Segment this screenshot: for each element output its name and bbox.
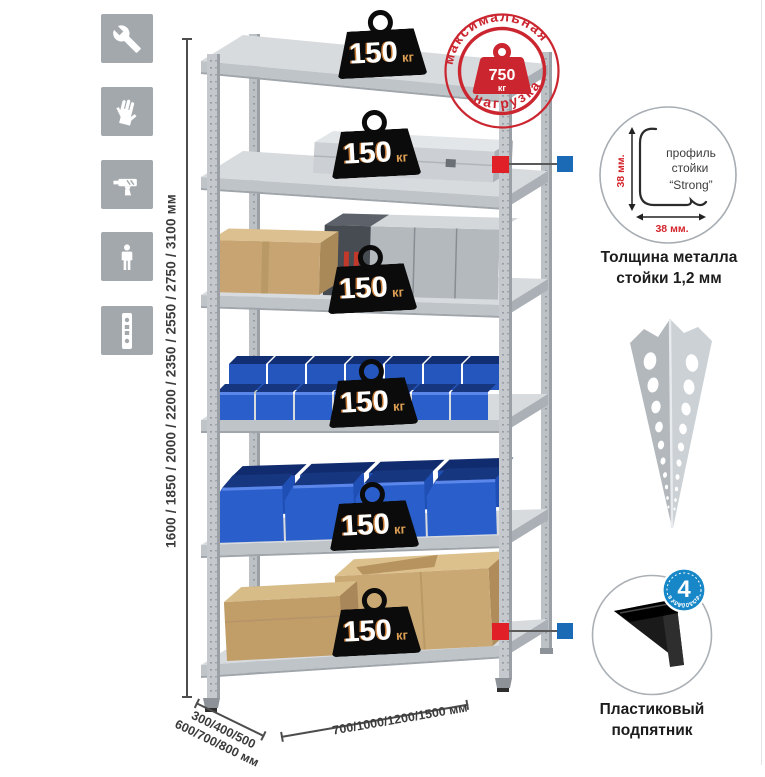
height-dimension-label: 1600 / 1850 / 2000 / 2200 / 2350 / 2550 …: [164, 194, 179, 548]
corner-post-illustration: [600, 303, 740, 538]
connector-square-blue-top: [557, 156, 573, 172]
connector-line-bottom: [509, 630, 557, 632]
dim-horizontal-label: 38 мм.: [655, 223, 688, 235]
shelf-load-badge-1: 150кг: [334, 8, 427, 80]
svg-text:“Strong”: “Strong”: [669, 178, 712, 192]
stamp-load-unit: кг: [498, 83, 507, 93]
foot-count-badge: 4 в комплекте: [660, 566, 708, 614]
load-unit: кг: [402, 50, 415, 64]
load-value: 150: [343, 616, 393, 647]
stamp-load-value: 750: [489, 67, 516, 84]
load-value: 150: [340, 387, 390, 418]
connector-square-red-top: [492, 156, 509, 173]
shelf-load-badge-6: 150кг: [328, 586, 421, 658]
profile-caption: Толщина металла стойки 1,2 мм: [580, 248, 758, 290]
person-icon: [114, 242, 140, 272]
profile-caption-line2: стойки 1,2 мм: [580, 269, 758, 290]
gloves-icon: [109, 93, 145, 129]
load-unit: кг: [396, 150, 409, 164]
load-unit: кг: [394, 522, 407, 536]
sidebar-tile-drill: [101, 160, 153, 209]
load-unit: кг: [393, 399, 406, 413]
height-dimension-line: [186, 38, 188, 698]
shelf-load-badge-3: 150кг: [324, 243, 417, 315]
load-value: 150: [339, 273, 389, 304]
load-unit: кг: [392, 285, 405, 299]
dim-vertical-label: 38 мм.: [615, 154, 627, 187]
shelf-load-badge-5: 150кг: [326, 480, 419, 552]
drill-icon: [111, 170, 143, 200]
profile-callout-circle: 38 мм. 38 мм. профиль стойки “Strong”: [598, 105, 739, 246]
connector-square-red-bottom: [492, 623, 509, 640]
svg-text:стойки: стойки: [672, 161, 709, 175]
load-unit: кг: [396, 628, 409, 642]
rack-post-icon: [119, 312, 135, 350]
shelf-load-badge-2: 150кг: [328, 108, 421, 180]
foot-count-value: 4: [677, 576, 691, 603]
sidebar-tile-assembly: [101, 14, 153, 63]
sidebar-tile-person: [101, 232, 153, 281]
plastic-foot: [497, 688, 509, 692]
sidebar-tile-gloves: [101, 87, 153, 136]
svg-text:профиль: профиль: [666, 146, 716, 160]
load-value: 150: [343, 138, 393, 169]
load-value: 150: [349, 38, 399, 69]
foot-caption-line1: Пластиковый: [586, 700, 718, 721]
wrench-icon: [112, 24, 142, 54]
foot-caption-line2: подпятник: [586, 721, 718, 742]
load-value: 150: [341, 510, 391, 541]
connector-square-blue-bottom: [557, 623, 573, 639]
sidebar-tile-rack-post: [101, 306, 153, 355]
connector-line-top: [509, 163, 557, 165]
profile-caption-line1: Толщина металла: [580, 248, 758, 269]
foot-caption: Пластиковый подпятник: [586, 700, 718, 742]
shelf-load-badge-4: 150кг: [325, 357, 418, 429]
max-load-stamp: максимальная нагрузка 750 кг: [440, 9, 564, 133]
stamp-weight-icon: 750 кг: [473, 46, 531, 95]
page-edge-line: [761, 0, 762, 765]
